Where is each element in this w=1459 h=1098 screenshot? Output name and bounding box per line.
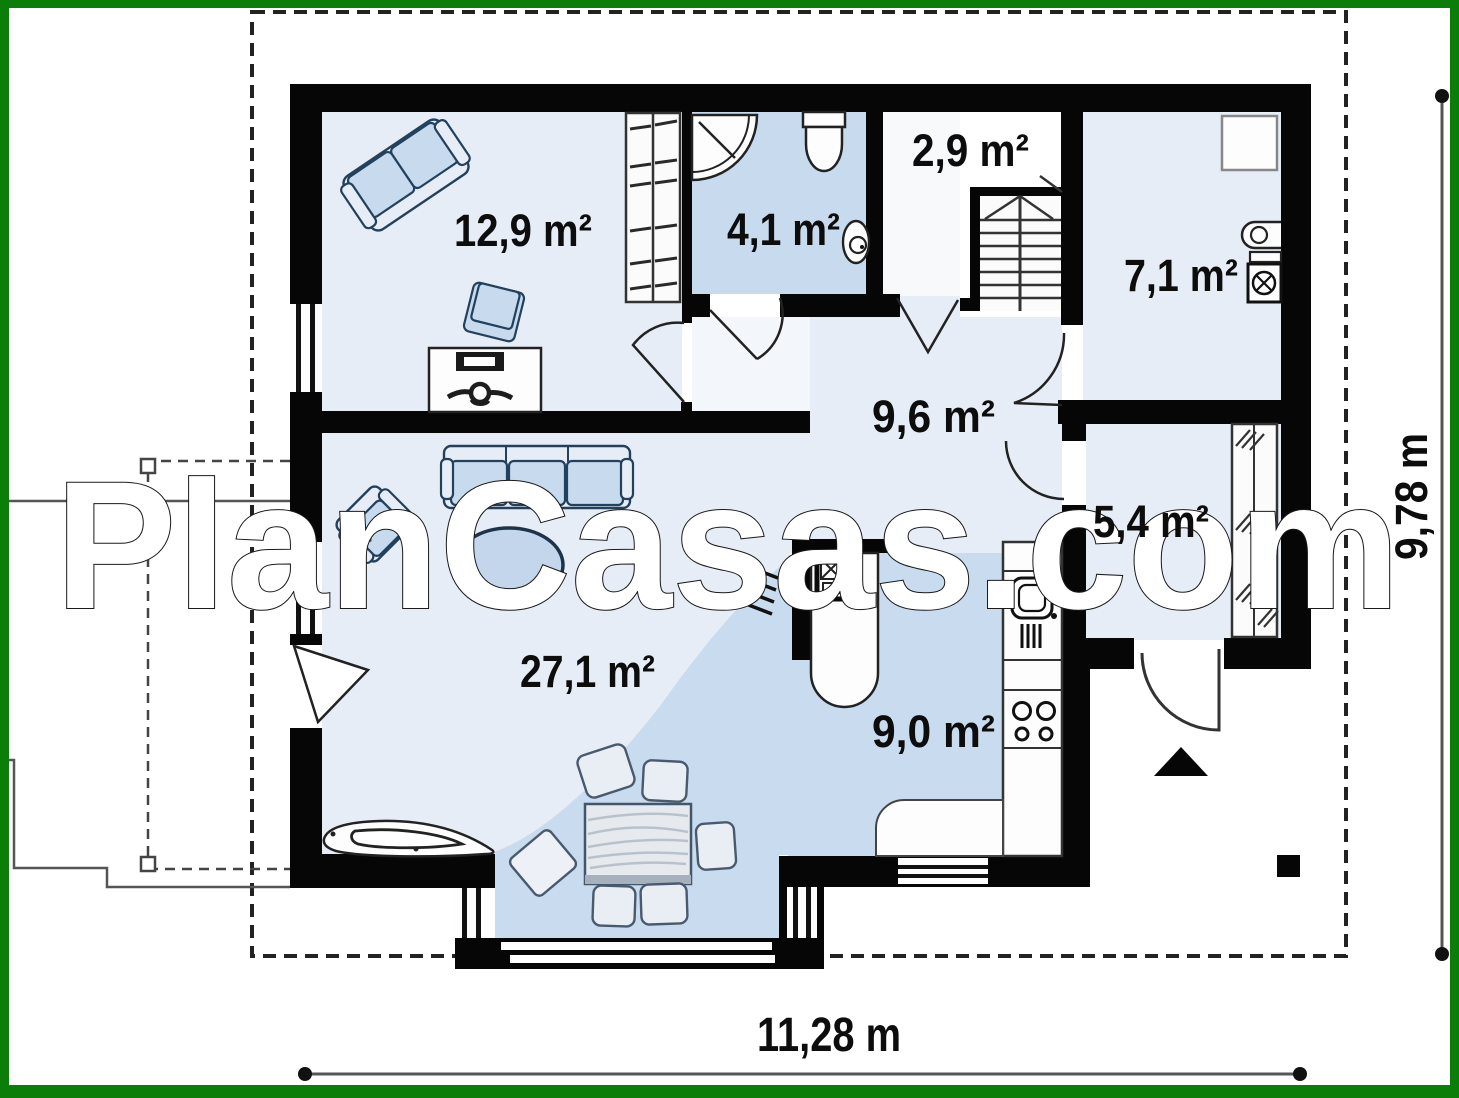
- svg-text:5,4 m²: 5,4 m²: [1093, 496, 1209, 547]
- svg-text:27,1 m²: 27,1 m²: [520, 646, 655, 697]
- svg-text:2,9 m²: 2,9 m²: [912, 125, 1029, 176]
- svg-text:9,6 m²: 9,6 m²: [872, 391, 995, 442]
- svg-text:9,78 m: 9,78 m: [1386, 433, 1437, 560]
- svg-text:9,0 m²: 9,0 m²: [872, 706, 995, 757]
- svg-text:4,1 m²: 4,1 m²: [727, 204, 840, 255]
- svg-text:11,28 m: 11,28 m: [757, 1009, 901, 1062]
- svg-text:12,9 m²: 12,9 m²: [454, 205, 592, 256]
- svg-text:7,1 m²: 7,1 m²: [1124, 250, 1238, 301]
